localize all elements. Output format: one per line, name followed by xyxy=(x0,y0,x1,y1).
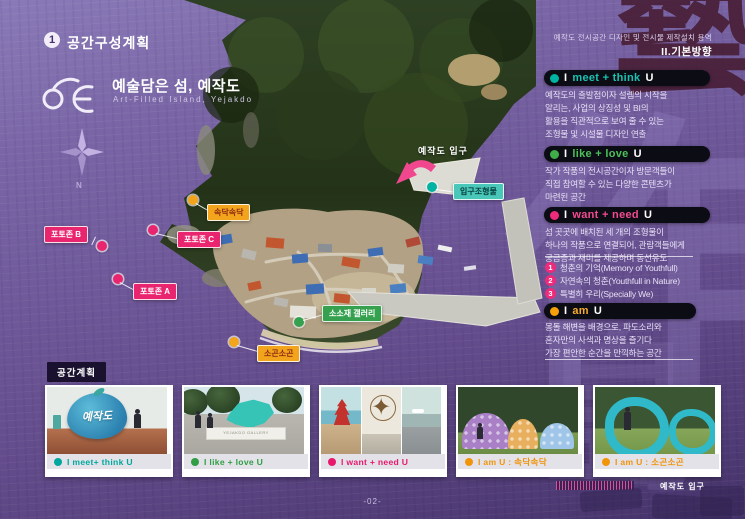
title-post: U xyxy=(644,209,652,221)
title-post: U xyxy=(594,305,602,317)
person-figure xyxy=(207,417,213,428)
thumbnail-sculptures-collage: ✦ xyxy=(321,387,441,454)
project-title: 예작도 전시공간 디자인 및 전시물 제작설치 용역 xyxy=(554,32,712,43)
person-figure xyxy=(134,414,141,428)
thumbnail-ring-sculptures-render xyxy=(595,387,715,454)
purple-dome-shape xyxy=(462,413,510,449)
title-pre: I xyxy=(564,148,567,160)
person-figure xyxy=(477,427,483,439)
map-dot-entrance-sculpture xyxy=(427,182,437,192)
list-number-badge: 1 xyxy=(545,262,556,273)
caption-dot-icon xyxy=(54,458,62,466)
kiosk-shape xyxy=(53,415,61,429)
plan-card-sogon: I am U : 소곤소곤 xyxy=(593,385,721,477)
map-label-photozone-b: 포토존 B xyxy=(44,226,88,243)
title-post: U xyxy=(645,72,653,84)
section-heading: II.기본방향 xyxy=(661,44,712,59)
collage-slice-star-sculpture: ✦ xyxy=(362,387,402,454)
tree-shape xyxy=(272,387,302,413)
page-title: 공간구성계획 xyxy=(67,33,150,53)
title-mid: meet + think xyxy=(572,72,640,84)
red-sculpture-shape xyxy=(333,399,351,425)
map-dot-gallery xyxy=(294,317,304,327)
divider-line xyxy=(545,359,693,360)
decor-shape xyxy=(700,486,744,516)
caption-bar: I like + love U xyxy=(184,454,308,469)
plan-thumbnails-row: 예작도 I meet+ think U YEJAKDO GALLERY xyxy=(45,385,721,477)
thumbnail-dome-pavilions-render xyxy=(458,387,578,454)
list-item: 2 자연속의 청춘(Youthfull in Nature) xyxy=(545,274,730,287)
caption-bar: I want + need U xyxy=(321,454,445,469)
compass-north-label: N xyxy=(76,181,82,190)
teal-ring-sculpture xyxy=(605,397,669,454)
concept-title-i-am-u: I am U xyxy=(544,303,696,319)
brand-logo-icon xyxy=(40,72,104,114)
title-pre: I xyxy=(564,305,567,317)
map-label-entrance-sculpture: 입구조형물 xyxy=(453,183,504,200)
list-item-text: 자연속의 청춘(Youthfull in Nature) xyxy=(560,275,680,287)
plan-card-like-love: YEJAKDO GALLERY I like + love U xyxy=(182,385,310,477)
list-item: 1 청춘의 기억(Memory of Youthfull) xyxy=(545,261,730,274)
concept-body-like-love: 작가 작품의 전시공간이자 방문객들이 직접 참여할 수 있는 다양한 콘텐츠가… xyxy=(545,165,727,204)
plan-section-label: 공간계획 xyxy=(47,362,106,382)
caption-bar: I am U : 소곤소곤 xyxy=(595,454,719,469)
divider-line xyxy=(545,256,693,257)
caption-dot-icon xyxy=(602,458,610,466)
boat-shape xyxy=(412,409,424,413)
gallery-sign-base: YEJAKDO GALLERY xyxy=(206,427,286,440)
caption-dot-icon xyxy=(465,458,473,466)
presentation-page: 藝 作 島 xyxy=(0,0,745,519)
person-figure xyxy=(195,415,201,428)
caption-text: I meet+ think U xyxy=(67,457,133,467)
map-dot-photozone-b xyxy=(97,241,107,251)
thumbnail-gallery-render: YEJAKDO GALLERY xyxy=(184,387,304,454)
map-label-photozone-a: 포토존 A xyxy=(133,283,177,300)
plan-card-sokdak: I am U : 속닥속닥 xyxy=(456,385,584,477)
blue-dome-shape xyxy=(540,423,574,449)
list-item-text: 청춘의 기억(Memory of Youthfull) xyxy=(560,262,678,274)
map-label-sogon: 소곤소곤 xyxy=(257,345,300,362)
caption-text: I like + love U xyxy=(204,457,263,467)
brand-name-korean: 예술담은 섬, 예작도 xyxy=(112,75,240,96)
bullet-dot-icon xyxy=(550,307,559,316)
caption-text: I am U : 소곤소곤 xyxy=(615,456,684,468)
list-item: 3 특별히 우리(Specially We) xyxy=(545,287,730,300)
caption-dot-icon xyxy=(191,458,199,466)
plan-card-want-need: ✦ I want + need U xyxy=(319,385,447,477)
caption-dot-icon xyxy=(328,458,336,466)
concept-title-want-need: I want + need U xyxy=(544,207,710,223)
bullet-dot-icon xyxy=(550,211,559,220)
list-number-badge: 2 xyxy=(545,275,556,286)
list-item-text: 특별히 우리(Specially We) xyxy=(560,288,653,300)
title-mid: like + love xyxy=(572,148,628,160)
thumbnail-entrance-sign-render: 예작도 xyxy=(47,387,167,454)
plan-card-meet-think: 예작도 I meet+ think U xyxy=(45,385,173,477)
title-post: U xyxy=(634,148,642,160)
collage-slice-coast xyxy=(402,387,441,454)
star-sculpture-shape: ✦ xyxy=(366,393,396,423)
bullet-dot-icon xyxy=(550,74,559,83)
caption-bar: I meet+ think U xyxy=(47,454,171,469)
compass-rose-icon xyxy=(60,128,104,178)
sculpture-list: 1 청춘의 기억(Memory of Youthfull) 2 자연속의 청춘(… xyxy=(545,261,730,300)
map-label-gallery: 소소재 갤러리 xyxy=(322,305,382,322)
caption-bar: I am U : 속닥속닥 xyxy=(458,454,582,469)
collage-slice-red-sculpture xyxy=(321,387,362,454)
teal-ring-sculpture xyxy=(669,409,715,454)
title-mid: am xyxy=(572,305,589,317)
concept-title-meet-think: I meet + think U xyxy=(544,70,710,86)
bullet-dot-icon xyxy=(550,150,559,159)
brand-name-english: Art-Filled Island, Yejakdo xyxy=(113,95,253,104)
concept-body-want-need: 섬 곳곳에 배치된 세 개의 조형물이 하나의 작품으로 연결되어, 관람객들에… xyxy=(545,226,727,265)
title-mid: want + need xyxy=(572,209,639,221)
title-pre: I xyxy=(564,209,567,221)
concept-body-i-am-u: 몽돌 해변을 배경으로, 파도소리와 혼자만의 사색과 명상을 즐기다 가장 편… xyxy=(545,321,727,360)
caption-text: I am U : 속닥속닥 xyxy=(478,456,547,468)
person-figure xyxy=(624,412,631,430)
orange-dome-shape xyxy=(508,419,538,449)
sign-text: 예작도 xyxy=(67,406,128,425)
map-label-sokdak: 속닥속닥 xyxy=(207,204,250,221)
page-number-badge: 1 xyxy=(44,32,60,48)
concept-title-like-love: I like + love U xyxy=(544,146,710,162)
list-number-badge: 3 xyxy=(545,288,556,299)
footer-entrance-label: 예작도 입구 xyxy=(660,481,705,492)
decor-shape xyxy=(579,488,642,512)
caption-text: I want + need U xyxy=(341,457,408,467)
concept-body-meet-think: 예작도의 출발점이자 설렘의 시작을 알리는, 사업의 상징성 및 BI의 활용… xyxy=(545,89,727,141)
apple-sign-shape: 예작도 xyxy=(66,391,128,440)
map-label-photozone-c: 포토존 C xyxy=(177,231,221,248)
title-pre: I xyxy=(564,72,567,84)
